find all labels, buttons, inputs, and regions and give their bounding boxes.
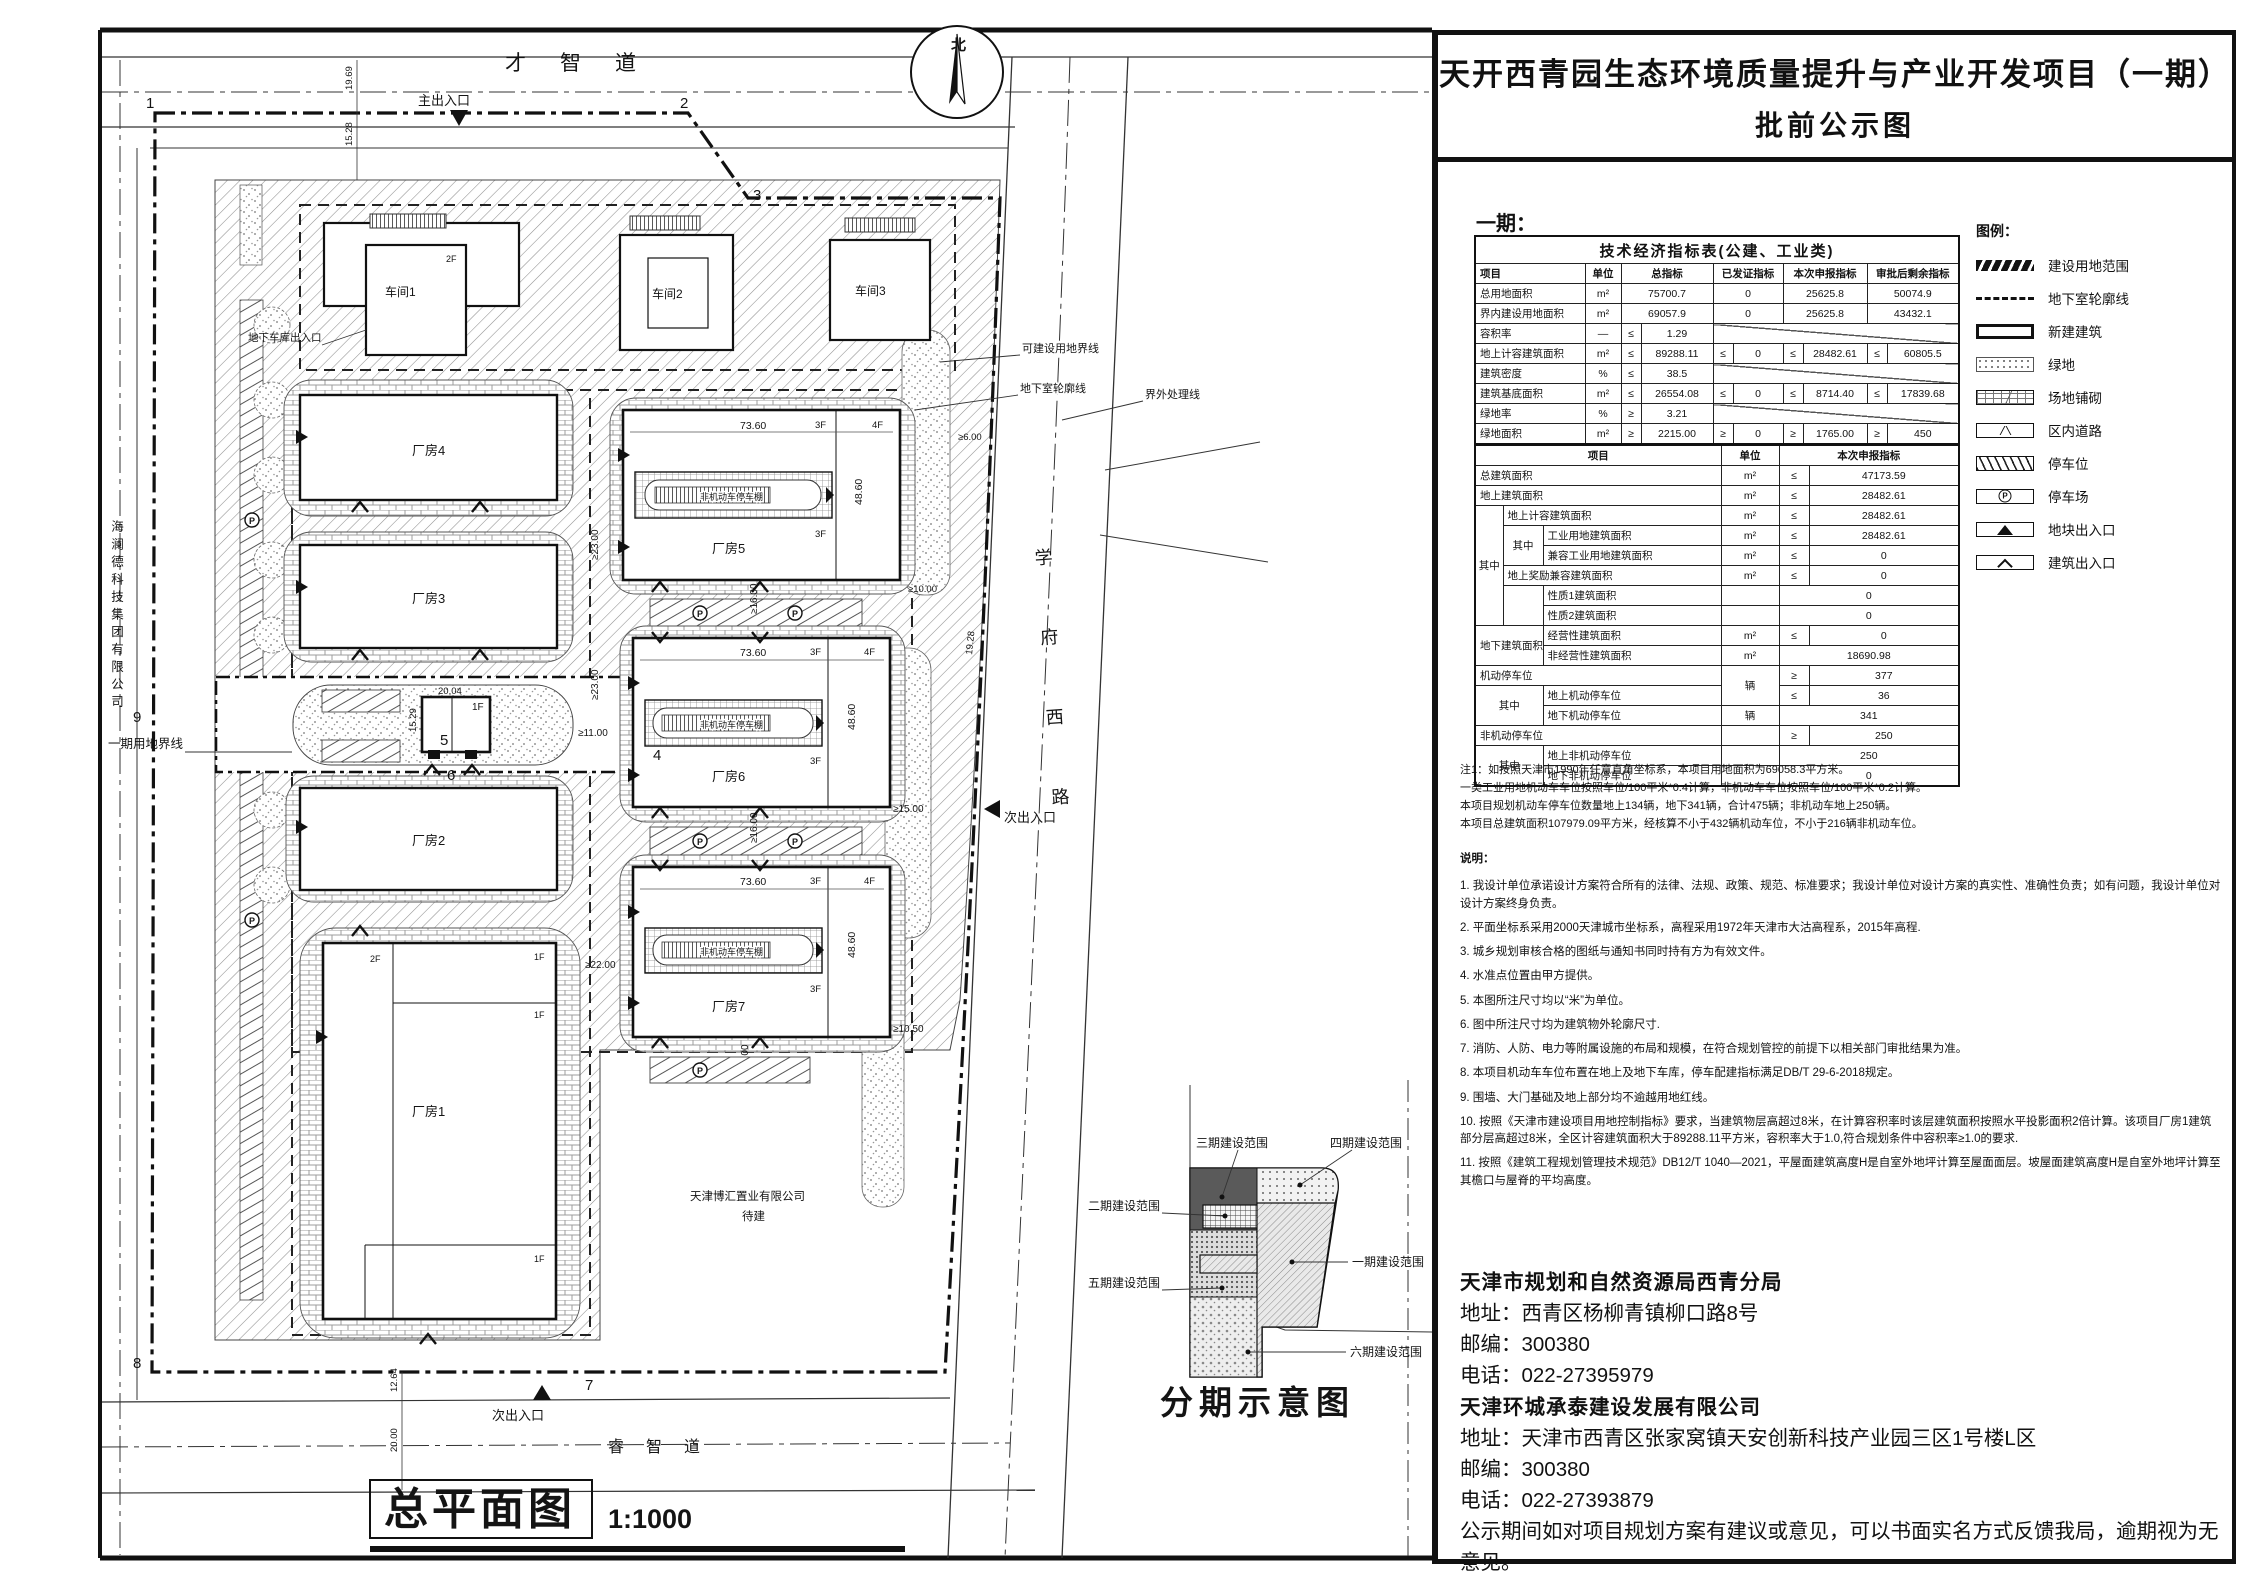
secondary-entrance-bottom-label: 次出入口 — [492, 1408, 544, 1423]
text-line: 本项目总建筑面积107979.09平方米，经核算不小于432辆机动车位，不小于2… — [1460, 815, 2070, 833]
legend-item: 停车场 — [1976, 486, 2226, 506]
factory6-label: 厂房6 — [712, 769, 745, 784]
phase5-label: 五期建设范围 — [1088, 1276, 1160, 1290]
text-line: 6. 图中所注尺寸均为建筑物外轮廓尺寸. — [1460, 1017, 2222, 1034]
text-line: 2. 平面坐标系采用2000天津城市坐标系，高程采用1972年天津市大沽高程系，… — [1460, 920, 2222, 937]
caption-underline — [370, 1546, 905, 1552]
legend-items: 建设用地范围地下室轮廓线新建建筑绿地场地铺砌区内道路停车位停车场地块出入口建筑出… — [1976, 255, 2226, 572]
text-line: 9. 围墙、大门基础及地上部分均不逾越用地红线。 — [1460, 1090, 2222, 1107]
green-verge — [240, 185, 262, 265]
road-ruizhi-label: 睿智道 — [608, 1438, 722, 1456]
green-legend-icon — [1976, 357, 2034, 372]
phase4-label: 四期建设范围 — [1330, 1136, 1402, 1150]
site-plan: 才智道 睿智道 学府西路 北 — [0, 0, 1432, 1588]
garage-entrance-label: 地下车库出入口 — [248, 331, 322, 344]
boundary-legend-icon — [1976, 260, 2034, 271]
svg-text:3: 3 — [753, 187, 761, 204]
basement-line-label: 地下室轮廓线 — [1020, 381, 1086, 395]
main-entrance-label: 主出入口 — [418, 93, 470, 108]
factory5-shed-label: 非机动车停车棚 — [700, 491, 763, 502]
dim-22: ≥22.00 — [585, 960, 616, 971]
neighbor-south-label: 天津博汇置业有限公司 — [690, 1189, 805, 1203]
main-entrance-icon — [450, 110, 468, 126]
factory6-4f: 4F — [864, 647, 875, 658]
svg-text:P: P — [792, 837, 798, 847]
road-ruizhi — [102, 1398, 1035, 1493]
text-line: 天津环城承泰建设发展有限公司 — [1460, 1392, 2230, 1423]
text-line: 7. 消防、人防、电力等附属设施的布局和规模，在符合规划管控的前提下以相关部门审… — [1460, 1041, 2222, 1058]
factory5-label: 厂房5 — [712, 541, 745, 556]
factory7-shed-label: 非机动车停车棚 — [700, 946, 763, 957]
building-legend-icon — [1976, 324, 2034, 339]
stall-legend-icon — [1976, 456, 2034, 471]
phase3-label: 三期建设范围 — [1196, 1136, 1268, 1150]
factory1-floor-2f: 2F — [370, 954, 381, 964]
factory6-shed-label: 非机动车停车棚 — [700, 719, 763, 730]
legend-item: 新建建筑 — [1976, 321, 2226, 341]
legend-label: 绿地 — [2048, 354, 2075, 374]
legend-label: 建筑出入口 — [2048, 552, 2116, 572]
legend-title: 图例： — [1976, 221, 2226, 241]
svg-text:2: 2 — [680, 95, 688, 112]
dim-11: ≥11.00 — [578, 728, 608, 739]
svg-text:P: P — [697, 1066, 703, 1076]
text-line: 一类工业用地机动车车位按照车位/100平米*0.4计算，非机动车车位按照车位/1… — [1460, 779, 2070, 797]
text-line: 10. 按照《天津市建设项目用地控制指标》要求，当建筑物层高超过8米，在计算容积… — [1460, 1114, 2222, 1149]
road-caizhi-label: 才智道 — [505, 52, 670, 75]
factory1-label: 厂房1 — [412, 1104, 445, 1119]
text-line: 注1：如按照天津市1990年任意直角坐标系，本项目用地面积为69058.3平方米… — [1460, 761, 2070, 779]
svg-text:4: 4 — [653, 747, 661, 764]
legend-label: 新建建筑 — [2048, 321, 2102, 341]
text-line: 8. 本项目机动车车位布置在地上及地下车库，停车配建指标满足DB/T 29-6-… — [1460, 1065, 2222, 1082]
svg-text:P: P — [697, 837, 703, 847]
basement-legend-icon — [1976, 292, 2034, 305]
title-block: 天开西青园生态环境质量提升与产业开发项目（一期） 批前公示图 — [1438, 35, 2232, 162]
text-line: 地址：天津市西青区张家窝镇天安创新科技产业园三区1号楼L区 — [1460, 1423, 2230, 1454]
factory6-3f-top: 3F — [810, 647, 821, 658]
text-line: 5. 本图所注尺寸均以“米”为单位。 — [1460, 993, 2222, 1010]
notes-items: 1. 我设计单位承诺设计方案符合所有的法律、法规、政策、规范、标准要求；我设计单… — [1460, 878, 2222, 1190]
factory7-height: 48.60 — [846, 932, 858, 958]
lot-legend-icon — [1976, 489, 2034, 504]
factory7-width: 73.60 — [740, 876, 766, 888]
factory4-label: 厂房4 — [412, 443, 445, 458]
legend-item: 绿地 — [1976, 354, 2226, 374]
svg-text:8: 8 — [133, 1355, 141, 1372]
workshop3-label: 车间3 — [855, 283, 886, 298]
parking-row-7s — [650, 1057, 810, 1083]
substation-floor: 1F — [472, 702, 484, 713]
factory3-label: 厂房3 — [412, 591, 445, 606]
secondary-entrance-bottom-icon — [533, 1385, 551, 1400]
drawing-type: 批前公示图 — [1755, 104, 1915, 144]
road-left — [120, 60, 137, 1555]
contact-block: 天津市规划和自然资源局西青分局地址：西青区杨柳青镇柳口路8号邮编：300380电… — [1460, 1267, 2230, 1579]
svg-text:1: 1 — [146, 95, 154, 112]
text-line: 11. 按照《建筑工程规划管理技术规范》DB12/T 1040—2021，平屋面… — [1460, 1155, 2222, 1190]
factory5-height: 48.60 — [853, 479, 865, 505]
svg-text:7: 7 — [585, 1377, 593, 1394]
paving-legend-icon — [1976, 390, 2034, 405]
dim-1264: 12.64 — [389, 1368, 400, 1392]
indicator-table-main: 技术经济指标表(公建、工业类)项目单位总指标已发证指标本次申报指标审批后剩余指标… — [1474, 235, 1962, 445]
legend-label: 场地铺砌 — [2048, 387, 2102, 407]
factory1 — [300, 928, 580, 1338]
factory1-floor-1f-a: 1F — [534, 952, 545, 962]
text-line: 电话：022-27393879 — [1460, 1485, 2230, 1516]
factory7-3f-bottom: 3F — [810, 984, 821, 995]
factory5-3f-bottom: 3F — [815, 529, 826, 540]
road-legend-icon — [1976, 423, 2034, 438]
svg-text:9: 9 — [133, 709, 141, 726]
factory5-4f: 4F — [872, 420, 883, 431]
text-line: 本项目规划机动车停车位数量地上134辆，地下341辆，合计475辆；非机动车地上… — [1460, 797, 2070, 815]
legend-label: 地块出入口 — [2048, 519, 2116, 539]
drawing-sheet: 才智道 睿智道 学府西路 北 — [0, 0, 2245, 1588]
factory5-width: 73.60 — [740, 420, 766, 432]
svg-text:P: P — [249, 916, 255, 926]
workshop1-floor: 2F — [446, 254, 457, 264]
text-line: 4. 水准点位置由甲方提供。 — [1460, 968, 2222, 985]
legend-label: 停车位 — [2048, 453, 2089, 473]
dim-2000: 20.00 — [389, 1428, 400, 1452]
note1-block: 注1：如按照天津市1990年任意直角坐标系，本项目用地面积为69058.3平方米… — [1460, 761, 2070, 834]
dim-23b: ≥23.00 — [590, 669, 601, 700]
factory2-label: 厂房2 — [412, 833, 445, 848]
legend-item: 建筑出入口 — [1976, 552, 2226, 572]
buildable-line-label: 可建设用地界线 — [1022, 341, 1099, 355]
text-line: 邮编：300380 — [1460, 1454, 2230, 1485]
svg-text:5: 5 — [440, 732, 448, 749]
notes-block: 说明： 1. 我设计单位承诺设计方案符合所有的法律、法规、政策、规范、标准要求；… — [1460, 851, 2222, 1197]
phase-label: 一期： — [1476, 207, 1536, 236]
dim-6: ≥6.00 — [958, 432, 982, 443]
secondary-entrance-right-label: 次出入口 — [1004, 810, 1056, 825]
text-line: 邮编：300380 — [1460, 1329, 2230, 1360]
road-caizhi — [102, 57, 1432, 148]
dim-10: ≥10.00 — [908, 584, 937, 595]
phase1-label: 一期建设范围 — [1352, 1255, 1424, 1269]
legend-label: 区内道路 — [2048, 420, 2102, 440]
text-line: 公示期间如对项目规划方案有建议或意见，可以书面实名方式反馈我局，逾期视为无意见。 — [1460, 1516, 2230, 1578]
text-line: 3. 城乡规划审核合格的图纸与通知书同时持有方为有效文件。 — [1460, 944, 2222, 961]
phase2-label: 二期建设范围 — [1088, 1199, 1160, 1213]
legend-label: 停车场 — [2048, 486, 2089, 506]
plan-scale: 1:1000 — [608, 1504, 692, 1534]
factory1-floor-1f-c: 1F — [534, 1254, 545, 1264]
phasing-caption: 分期示意图 — [1160, 1384, 1355, 1421]
phasing-diagram — [1162, 1150, 1352, 1377]
notes-heading: 说明： — [1460, 851, 2222, 868]
legend-item: 区内道路 — [1976, 420, 2226, 440]
legend-item: 建设用地范围 — [1976, 255, 2226, 275]
bldg-entry-legend-icon — [1976, 555, 2034, 570]
factory6-width: 73.60 — [740, 647, 766, 659]
outside-line-label: 界外处理线 — [1145, 387, 1200, 401]
text-line: 天津市规划和自然资源局西青分局 — [1460, 1267, 2230, 1298]
text-line: 1. 我设计单位承诺设计方案符合所有的法律、法规、政策、规范、标准要求；我设计单… — [1460, 878, 2222, 913]
factory7-label: 厂房7 — [712, 999, 745, 1014]
substation-depth: 15.29 — [408, 708, 419, 732]
factory5-3f-top: 3F — [815, 420, 826, 431]
svg-text:P: P — [792, 609, 798, 619]
dim-1969: 19.69 — [344, 66, 355, 90]
neighbor-south-status: 待建 — [742, 1209, 765, 1223]
phase1-line-label: 一期用地界线 — [108, 737, 184, 751]
dim-15a: ≥15.00 — [893, 804, 924, 815]
phase6-label: 六期建设范围 — [1350, 1345, 1422, 1359]
legend-label: 建设用地范围 — [2048, 255, 2129, 275]
factory7-3f-top: 3F — [810, 876, 821, 887]
substation-band — [216, 677, 648, 772]
project-title: 天开西青园生态环境质量提升与产业开发项目（一期） — [1439, 49, 2231, 94]
neighbor-west-label: 海澜德科技集团有限公司 — [109, 519, 123, 713]
factory1-floor-1f-b: 1F — [534, 1010, 545, 1020]
dim-1528: 15.28 — [344, 122, 355, 146]
info-panel: 天开西青园生态环境质量提升与产业开发项目（一期） 批前公示图 一期： 技术经济指… — [1432, 30, 2236, 1564]
legend-label: 地下室轮廓线 — [2048, 288, 2129, 308]
legend: 图例： 建设用地范围地下室轮廓线新建建筑绿地场地铺砌区内道路停车位停车场地块出入… — [1976, 221, 2226, 585]
north-label: 北 — [951, 37, 966, 54]
dim-105: ≥10.50 — [893, 1024, 924, 1035]
substation-width: 20.04 — [438, 686, 462, 697]
plan-caption: 总平面图 — [384, 1485, 576, 1534]
svg-text:P: P — [697, 609, 703, 619]
svg-text:P: P — [249, 516, 255, 526]
legend-item: 场地铺砌 — [1976, 387, 2226, 407]
legend-item: 地下室轮廓线 — [1976, 288, 2226, 308]
factory6-3f-bottom: 3F — [810, 756, 821, 767]
legend-item: 停车位 — [1976, 453, 2226, 473]
indicator-table-detail: 项目单位本次申报指标总建筑面积m²≤47173.59地上建筑面积m²≤28482… — [1474, 444, 1962, 787]
workshop2-label: 车间2 — [652, 286, 683, 301]
indicator-tables: 技术经济指标表(公建、工业类)项目单位总指标已发证指标本次申报指标审批后剩余指标… — [1474, 235, 1962, 787]
workshop1-label: 车间1 — [385, 284, 416, 299]
factory7-4f: 4F — [864, 876, 875, 887]
text-line: 地址：西青区杨柳青镇柳口路8号 — [1460, 1298, 2230, 1329]
dim-23a: ≥23.00 — [590, 529, 601, 560]
text-line: 电话：022-27395979 — [1460, 1360, 2230, 1391]
legend-item: 地块出入口 — [1976, 519, 2226, 539]
factory6-height: 48.60 — [846, 704, 858, 730]
site-entry-legend-icon — [1976, 522, 2034, 537]
secondary-entrance-right-icon — [984, 800, 1000, 818]
svg-text:6: 6 — [447, 767, 455, 784]
